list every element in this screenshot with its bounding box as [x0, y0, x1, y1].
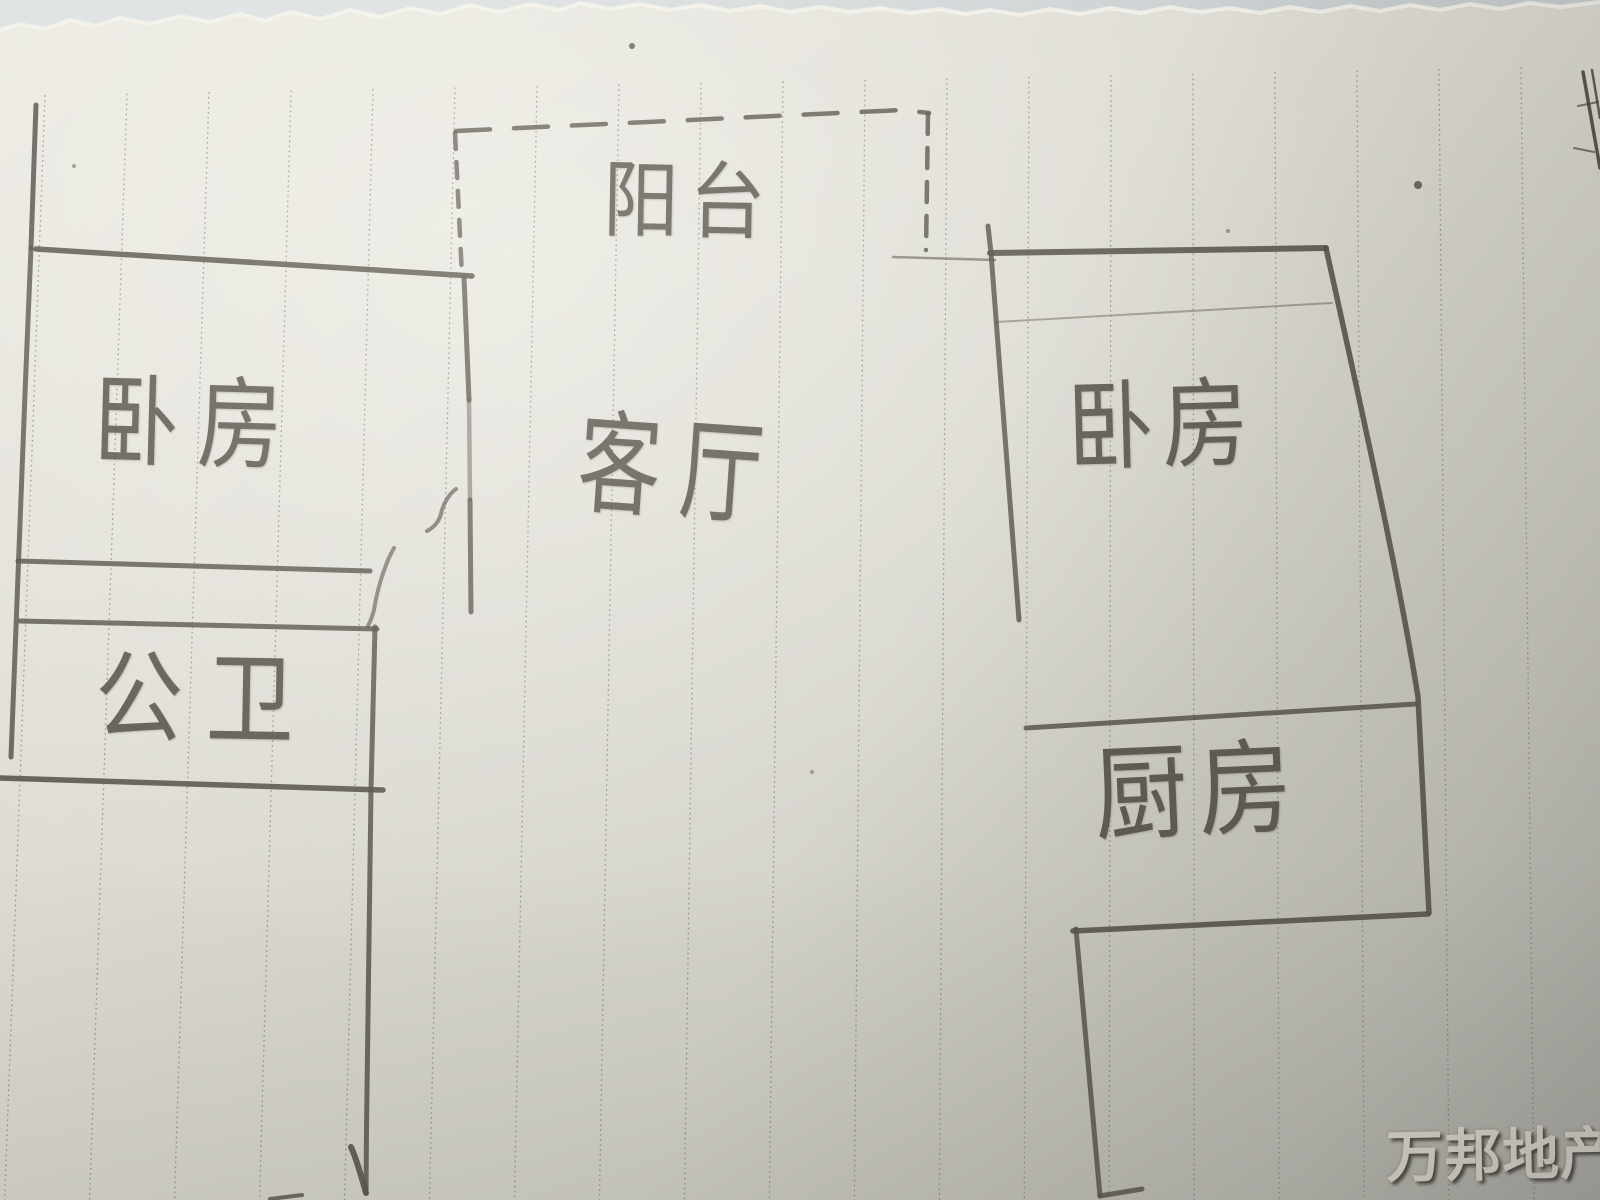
room-label-bedroom-left: 卧房: [92, 372, 302, 477]
room-label-living-room: 客厅: [574, 408, 786, 534]
wall-bedroom-right-tick: [988, 226, 991, 253]
wall-balcony-right-dashed: [926, 114, 928, 250]
paper-sheet: [0, 0, 1600, 1200]
room-label-bathroom: 公卫: [94, 648, 317, 752]
sketch-canvas: [0, 0, 1600, 1200]
room-label-balcony: 阳台: [603, 158, 777, 245]
wall-bedroom-left-right-2: [469, 400, 470, 500]
room-label-bedroom-right: 卧房: [1066, 375, 1259, 478]
wall-bedroom-left-right-3: [470, 500, 471, 612]
floorplan-photo: 阳台 卧房 客厅 卧房 公卫 厨房 万邦地产: [0, 0, 1600, 1200]
room-label-kitchen: 厨房: [1092, 735, 1305, 848]
watermark: 万邦地产: [1385, 1124, 1600, 1188]
